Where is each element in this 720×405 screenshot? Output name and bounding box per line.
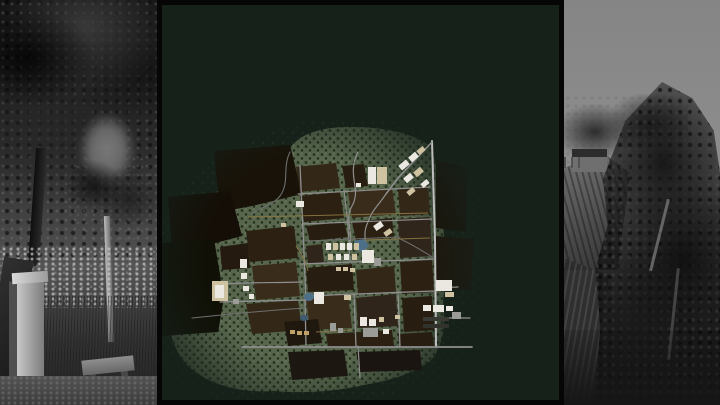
background-scene-left: [0, 0, 157, 405]
building: [374, 258, 381, 266]
building: [304, 331, 309, 335]
building: [433, 305, 444, 312]
building: [363, 328, 378, 337]
dark-ground: [564, 330, 720, 405]
building: [368, 167, 376, 184]
field-plot: [356, 266, 396, 294]
field-plot: [288, 350, 348, 380]
building: [336, 267, 341, 271]
building: [446, 306, 453, 311]
building: [296, 201, 304, 207]
building: [452, 312, 461, 319]
building: [347, 243, 352, 250]
building: [328, 254, 333, 260]
building: [314, 292, 324, 304]
field-plot: [296, 163, 340, 192]
building: [360, 317, 367, 326]
building: [215, 285, 224, 298]
building: [344, 254, 349, 260]
building: [338, 328, 343, 333]
field-plot: [398, 332, 434, 348]
building: [423, 317, 449, 321]
field-plot: [246, 226, 298, 262]
birch-crown: [66, 146, 157, 246]
field-plot: [400, 260, 434, 294]
building: [340, 243, 345, 250]
building: [233, 299, 239, 304]
building: [369, 319, 376, 326]
building: [326, 243, 331, 250]
building: [290, 330, 295, 334]
building: [383, 329, 389, 334]
game-screen: [0, 0, 720, 405]
building: [356, 183, 361, 187]
building: [333, 243, 338, 250]
building: [243, 286, 249, 291]
building: [350, 268, 355, 272]
building: [354, 243, 359, 250]
building: [445, 292, 454, 297]
building: [362, 250, 374, 263]
building: [281, 223, 286, 227]
building: [330, 323, 336, 331]
field-plot: [300, 192, 344, 222]
pond: [300, 315, 308, 321]
building: [436, 280, 452, 291]
building: [352, 254, 357, 260]
building: [423, 324, 449, 328]
gravel-path: [0, 376, 157, 405]
field-plot: [306, 244, 324, 264]
building: [297, 331, 302, 335]
building: [336, 254, 341, 260]
pond: [304, 293, 314, 301]
building: [377, 167, 387, 184]
building: [379, 317, 384, 322]
field-plot: [356, 350, 422, 372]
field-plot: [284, 319, 322, 346]
hill-fence: [564, 157, 580, 168]
building: [423, 305, 431, 311]
building: [241, 273, 247, 279]
building: [249, 294, 254, 299]
map-view[interactable]: [157, 0, 564, 405]
map-overview-panel: [157, 0, 564, 405]
field-plot: [398, 217, 432, 258]
building: [240, 259, 247, 268]
background-scene-right: [564, 0, 720, 405]
field-plot: [252, 262, 300, 300]
building: [395, 315, 400, 319]
building: [344, 295, 351, 300]
building: [343, 267, 348, 271]
